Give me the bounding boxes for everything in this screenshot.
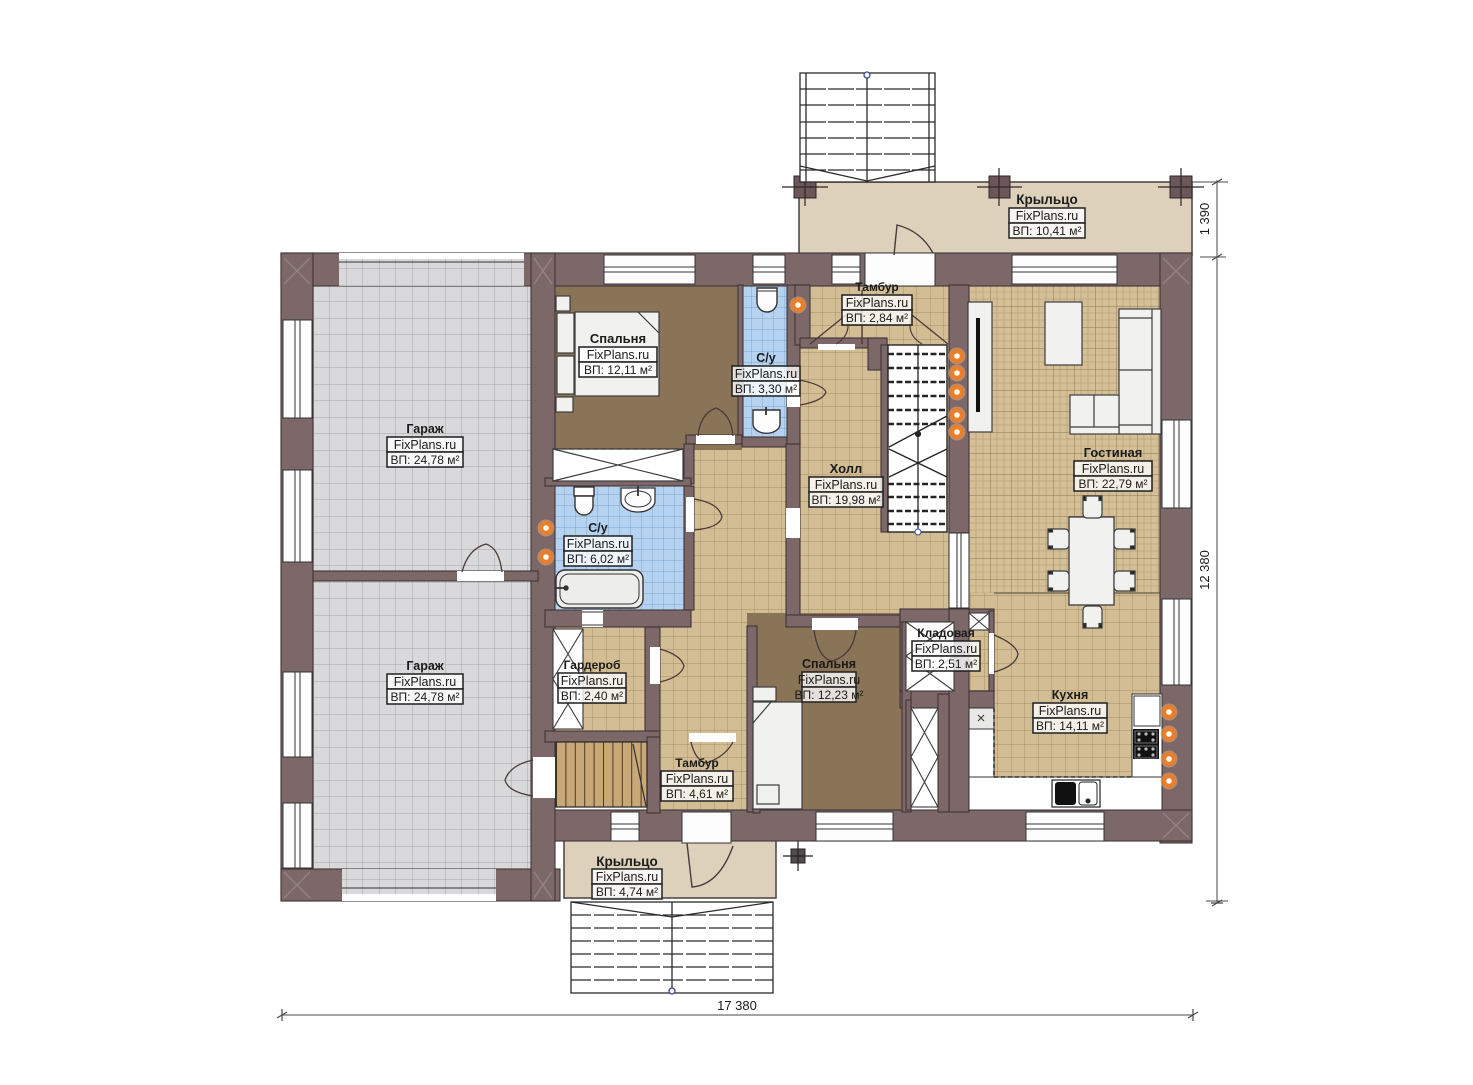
svg-text:FixPlans.ru: FixPlans.ru — [915, 642, 978, 656]
svg-text:Кухня: Кухня — [1052, 688, 1089, 702]
svg-text:FixPlans.ru: FixPlans.ru — [798, 673, 861, 687]
svg-text:FixPlans.ru: FixPlans.ru — [567, 537, 630, 551]
svg-text:ВП: 2,40 м²: ВП: 2,40 м² — [561, 689, 623, 703]
svg-text:ВП: 2,51 м²: ВП: 2,51 м² — [915, 657, 977, 671]
svg-text:FixPlans.ru: FixPlans.ru — [666, 772, 729, 786]
svg-text:ВП: 3,30 м²: ВП: 3,30 м² — [735, 382, 797, 396]
svg-text:Гараж: Гараж — [406, 422, 443, 436]
svg-text:FixPlans.ru: FixPlans.ru — [596, 870, 659, 884]
svg-text:FixPlans.ru: FixPlans.ru — [587, 348, 650, 362]
svg-text:ВП: 2,84 м²: ВП: 2,84 м² — [846, 311, 908, 325]
svg-text:ВП: 12,23 м²: ВП: 12,23 м² — [795, 688, 864, 702]
svg-text:ВП: 12,11 м²: ВП: 12,11 м² — [584, 363, 652, 377]
svg-text:ВП: 14,11 м²: ВП: 14,11 м² — [1036, 719, 1104, 733]
svg-text:ВП: 6,02 м²: ВП: 6,02 м² — [567, 552, 629, 566]
svg-text:Кладовая: Кладовая — [917, 626, 974, 640]
svg-text:FixPlans.ru: FixPlans.ru — [1082, 462, 1145, 476]
svg-text:Холл: Холл — [830, 461, 863, 476]
svg-text:С/у: С/у — [756, 351, 776, 365]
svg-text:Тамбур: Тамбур — [855, 280, 899, 294]
svg-text:FixPlans.ru: FixPlans.ru — [1039, 704, 1102, 718]
svg-text:С/у: С/у — [588, 521, 608, 535]
svg-text:FixPlans.ru: FixPlans.ru — [846, 296, 909, 310]
svg-text:Крыльцо: Крыльцо — [1016, 192, 1077, 207]
svg-text:FixPlans.ru: FixPlans.ru — [394, 438, 457, 452]
svg-text:ВП: 24,78 м²: ВП: 24,78 м² — [391, 690, 460, 704]
svg-text:FixPlans.ru: FixPlans.ru — [1016, 209, 1079, 223]
svg-text:FixPlans.ru: FixPlans.ru — [561, 674, 624, 688]
svg-text:FixPlans.ru: FixPlans.ru — [815, 478, 878, 492]
svg-text:ВП: 4,74 м²: ВП: 4,74 м² — [596, 885, 658, 899]
svg-text:Спальня: Спальня — [802, 657, 856, 671]
svg-text:Спальня: Спальня — [590, 331, 646, 346]
svg-text:ВП: 10,41 м²: ВП: 10,41 м² — [1013, 224, 1082, 238]
svg-text:Крыльцо: Крыльцо — [596, 854, 657, 869]
svg-text:17 380: 17 380 — [717, 998, 757, 1013]
svg-text:Гардероб: Гардероб — [564, 658, 621, 672]
svg-text:ВП: 22,79 м²: ВП: 22,79 м² — [1079, 477, 1148, 491]
svg-text:Гостиная: Гостиная — [1084, 445, 1143, 460]
svg-text:ВП: 24,78 м²: ВП: 24,78 м² — [391, 453, 460, 467]
svg-text:ВП: 19,98 м²: ВП: 19,98 м² — [812, 493, 881, 507]
svg-text:FixPlans.ru: FixPlans.ru — [735, 367, 798, 381]
svg-text:ВП: 4,61 м²: ВП: 4,61 м² — [666, 787, 728, 801]
svg-text:FixPlans.ru: FixPlans.ru — [394, 675, 457, 689]
svg-text:12 380: 12 380 — [1197, 550, 1212, 590]
svg-text:Гараж: Гараж — [406, 659, 443, 673]
svg-text:Тамбур: Тамбур — [675, 756, 719, 770]
svg-text:1 390: 1 390 — [1197, 203, 1212, 236]
